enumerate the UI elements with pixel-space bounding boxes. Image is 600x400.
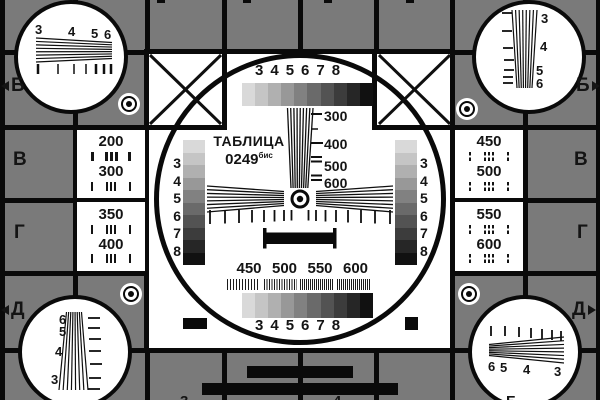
corner-wedge-line <box>489 348 564 349</box>
corner-wedge-line <box>36 45 112 47</box>
ibeam-cap <box>263 228 267 249</box>
corner-wedge-line <box>36 59 112 62</box>
pattern-overlay <box>0 0 600 400</box>
corner-wedge-line <box>75 312 76 390</box>
corner-wedge-line <box>36 54 112 55</box>
top-edge-partial-mark <box>406 0 414 3</box>
corner-wedge-line <box>79 312 84 390</box>
corner-wedge-line <box>489 351 564 352</box>
vertical-wedge-line <box>302 108 304 188</box>
corner-wedge-line <box>526 10 527 88</box>
corner-wedge-line <box>81 312 88 390</box>
corner-wedge-line <box>36 48 112 49</box>
ibeam-bar <box>266 233 333 245</box>
horizontal-wedge-line-left <box>207 193 284 195</box>
horizontal-wedge-line-left <box>207 200 284 201</box>
horizontal-wedge-line-right <box>316 193 393 195</box>
corner-wedge-line <box>528 10 530 88</box>
ibeam-cap <box>333 228 337 249</box>
tv-test-card: Б Б В В Г Г Д Д 200 300 350 400 450 500 <box>0 0 600 400</box>
vertical-wedge-line <box>299 108 300 188</box>
horizontal-wedge-line-right <box>316 200 393 201</box>
center-bullseye-dot <box>297 196 303 202</box>
top-edge-partial-mark <box>324 0 332 3</box>
corner-wedge-line <box>523 10 524 88</box>
vertical-wedge-line <box>294 108 295 188</box>
corner-wedge-line <box>71 312 73 390</box>
corner-wedge-line <box>36 56 112 58</box>
corner-wedge-line <box>77 312 80 390</box>
top-edge-partial-mark <box>243 0 251 3</box>
corner-wedge-line <box>519 10 521 88</box>
top-edge-partial-mark <box>157 0 165 3</box>
